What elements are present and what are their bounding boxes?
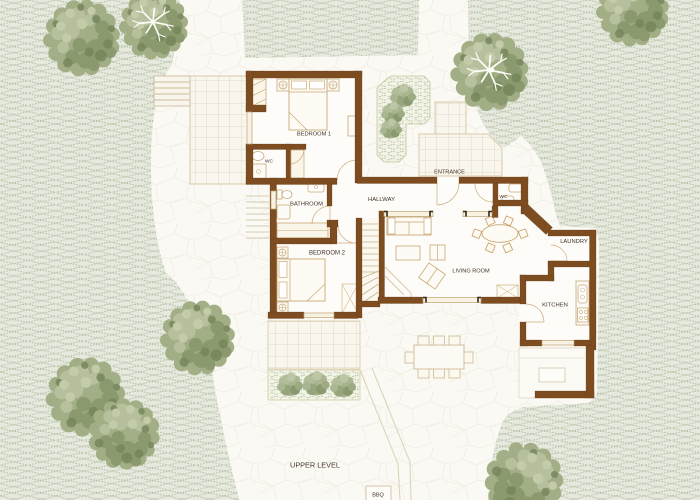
svg-text:WC: WC — [499, 194, 508, 200]
svg-text:UPPER LEVEL: UPPER LEVEL — [290, 461, 340, 470]
svg-text:BBQ: BBQ — [372, 493, 384, 499]
svg-text:BEDROOM 2: BEDROOM 2 — [309, 251, 346, 257]
svg-text:BATHROOM: BATHROOM — [290, 202, 323, 208]
svg-text:ENTRANCE: ENTRANCE — [434, 170, 465, 176]
svg-text:LIVING ROOM: LIVING ROOM — [452, 269, 490, 275]
svg-text:HALLWAY: HALLWAY — [368, 197, 395, 203]
svg-text:KITCHEN: KITCHEN — [542, 303, 568, 309]
svg-text:WC: WC — [265, 159, 274, 165]
svg-text:LAUNDRY: LAUNDRY — [560, 239, 588, 245]
svg-text:BEDROOM 1: BEDROOM 1 — [297, 132, 331, 138]
